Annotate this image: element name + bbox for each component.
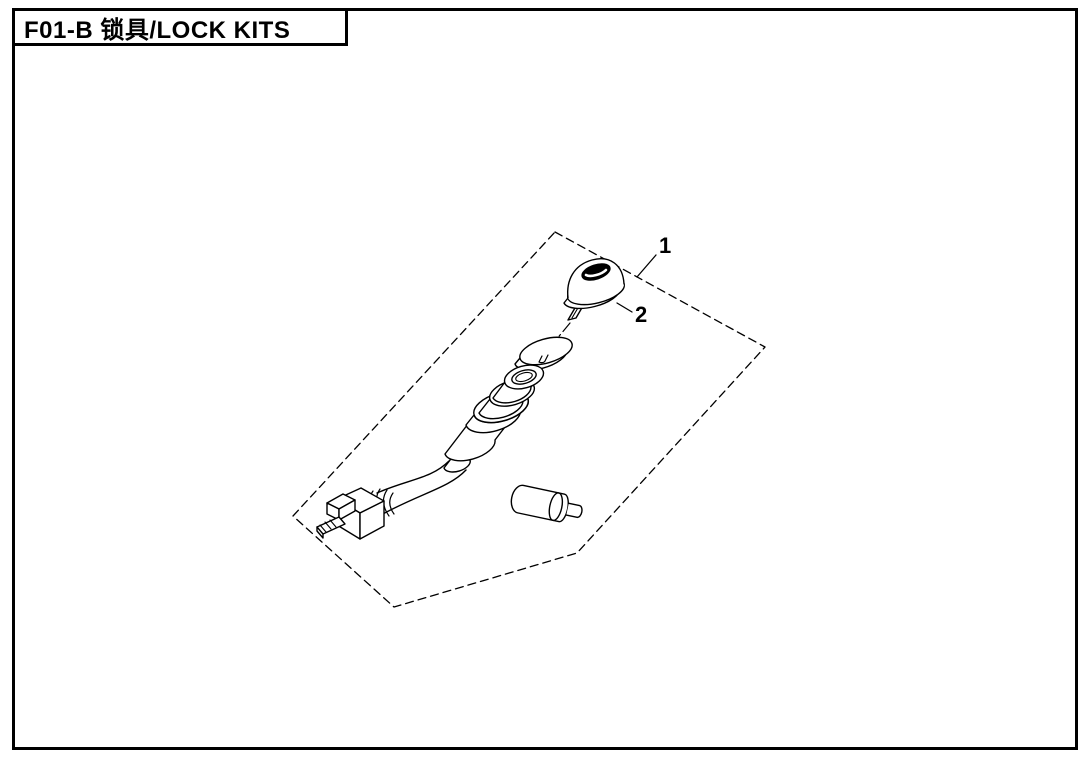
key-blank-cylinder (509, 484, 585, 526)
catalog-page: F01-B 锁具/LOCK KITS (0, 0, 1090, 760)
ignition-switch-part (444, 361, 546, 472)
callout-1-label: 1 (659, 233, 671, 258)
callout-2-label: 2 (635, 302, 647, 327)
connector-prong (317, 517, 345, 534)
kit-boundary-outline (293, 232, 765, 607)
connector-plug (317, 488, 394, 539)
callout-2-leader (617, 303, 632, 312)
callout-1-leader (637, 255, 656, 277)
key-part (564, 259, 627, 320)
cylinder-nub (566, 503, 583, 518)
parts-diagram: 1 2 (0, 0, 1090, 760)
washer-part (515, 332, 575, 370)
callout-1: 1 (637, 233, 671, 277)
cylinder-body (509, 484, 571, 523)
callout-2: 2 (617, 302, 647, 327)
